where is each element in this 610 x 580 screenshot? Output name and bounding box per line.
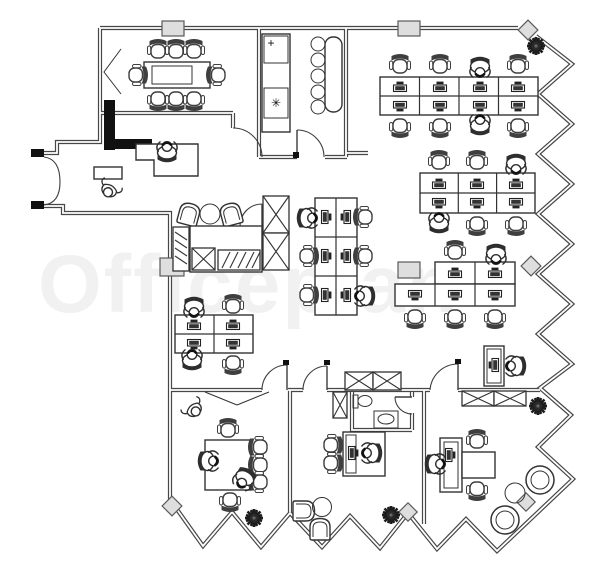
meeting-room	[180, 392, 269, 512]
reception	[94, 142, 198, 202]
column-diamond	[518, 20, 538, 40]
office-floor-plan: + ✳	[0, 0, 610, 580]
toilet-bowl	[358, 396, 372, 407]
tub-chair	[219, 201, 244, 227]
office-chair	[300, 285, 319, 306]
office-chair	[485, 310, 506, 329]
tub-chair	[176, 201, 201, 227]
person-at-desk	[470, 57, 490, 78]
column	[162, 21, 184, 36]
office-chair	[445, 310, 466, 329]
sink-basin	[378, 414, 394, 424]
conference-room	[104, 39, 225, 111]
desk-cluster-b	[420, 150, 535, 236]
standing-person	[96, 177, 123, 202]
side-shelf	[173, 227, 189, 271]
office-chair	[390, 119, 411, 138]
office-chair	[430, 54, 451, 73]
wc-room	[333, 372, 401, 428]
bar-stool	[311, 53, 325, 67]
kitchen: + ✳	[262, 34, 342, 132]
side-table	[94, 167, 122, 179]
column	[398, 21, 420, 36]
office-chair	[506, 217, 527, 236]
side-meeting-table	[462, 452, 495, 478]
bar-stool	[311, 100, 325, 114]
floor-plan-canvas: Officeplan	[0, 0, 610, 580]
desk-cluster-a	[380, 54, 538, 138]
person-at-desk	[506, 356, 527, 376]
nook-office	[462, 346, 526, 406]
office-chair	[430, 119, 451, 138]
chair	[220, 493, 241, 512]
office-chair	[223, 294, 244, 313]
chair	[184, 39, 205, 58]
bar-stool	[311, 85, 325, 99]
projection-lines	[205, 392, 269, 405]
waiting-door-arc	[240, 204, 262, 226]
entry-door-arc	[44, 157, 60, 182]
tub-chair	[310, 519, 330, 541]
executive-door-arc	[430, 364, 458, 390]
plant	[529, 397, 547, 415]
wardrobe-symbol	[104, 49, 121, 94]
chair	[218, 418, 239, 437]
chair	[129, 65, 148, 86]
meeting-door-arc	[262, 365, 287, 390]
column	[398, 262, 420, 278]
office-chair	[353, 207, 372, 228]
desk-cluster-c	[395, 240, 515, 329]
door-jamb	[293, 152, 299, 158]
door-jamb	[31, 201, 44, 209]
office-chair	[467, 150, 488, 169]
office-chair	[467, 217, 488, 236]
office-chair	[353, 246, 372, 267]
entry-door-arc	[44, 182, 60, 205]
chair	[184, 92, 205, 111]
kitchen-door-arc	[297, 130, 324, 157]
office-chair	[508, 119, 529, 138]
kitchen-cabinet-run	[262, 34, 290, 132]
chair	[206, 65, 225, 86]
plant	[245, 509, 263, 527]
round-side-table	[505, 483, 525, 503]
person-at-desk	[429, 213, 449, 234]
person-at-desk	[470, 115, 490, 136]
office-chair	[390, 54, 411, 73]
bar-stool	[311, 37, 325, 51]
bar-counter	[325, 37, 342, 112]
office-chair	[445, 240, 466, 259]
door-jamb	[324, 360, 330, 365]
middle-office	[293, 432, 385, 540]
door-jamb	[455, 359, 461, 364]
coffee-table	[313, 498, 332, 517]
office-chair	[429, 150, 450, 169]
desk-cluster-e	[175, 294, 253, 375]
bar-stool	[311, 69, 325, 83]
chair	[467, 429, 488, 448]
plant	[382, 506, 400, 524]
door-jamb	[31, 149, 44, 157]
person-at-desk	[506, 154, 526, 175]
chair	[467, 482, 488, 501]
fridge-symbol: +	[267, 36, 274, 50]
door-jamb	[283, 360, 289, 365]
waiting-area	[173, 196, 289, 272]
desk-cluster-d	[297, 198, 376, 315]
middle-office-door-arc	[303, 366, 327, 390]
coffee-table	[200, 204, 220, 224]
guest-chair	[324, 453, 343, 474]
standing-person	[180, 396, 207, 422]
office-chair	[508, 54, 529, 73]
office-chair	[300, 246, 319, 267]
office-chair	[223, 356, 244, 375]
tub-chair	[293, 501, 315, 521]
round-lounge-chair	[526, 466, 554, 494]
office-chair	[405, 310, 426, 329]
round-lounge-chair	[491, 506, 519, 534]
plant	[527, 37, 545, 55]
appliance-symbol: ✳	[271, 96, 281, 110]
